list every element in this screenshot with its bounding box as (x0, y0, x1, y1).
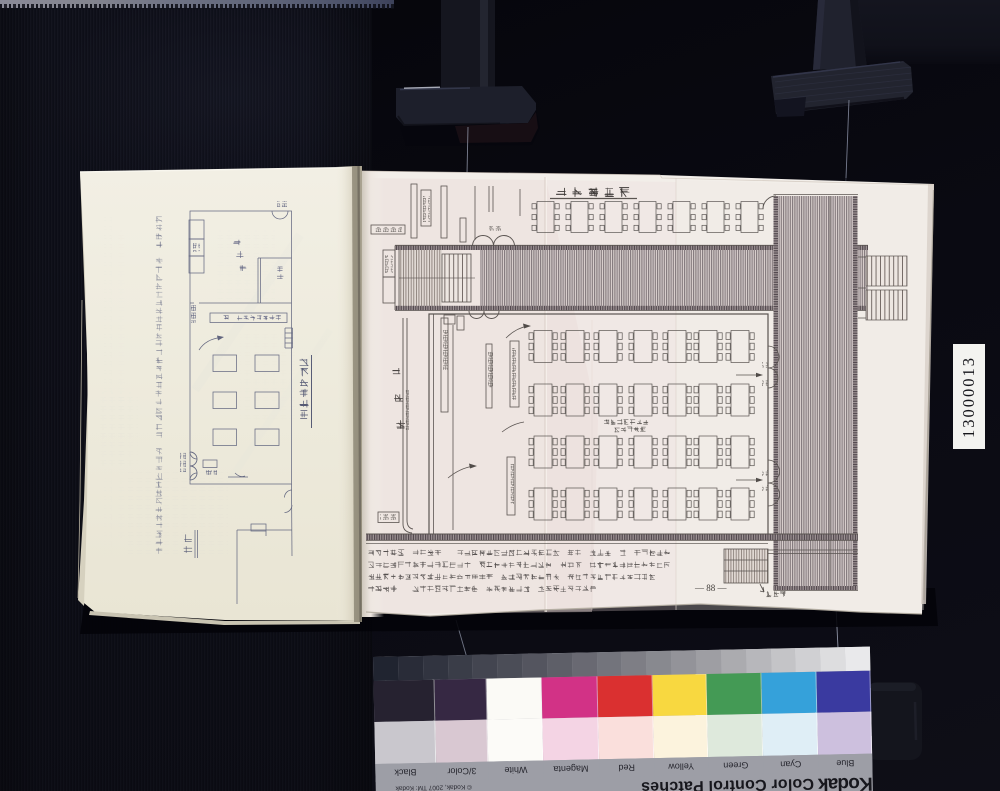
svg-text:— 88 —: — 88 — (694, 583, 728, 593)
